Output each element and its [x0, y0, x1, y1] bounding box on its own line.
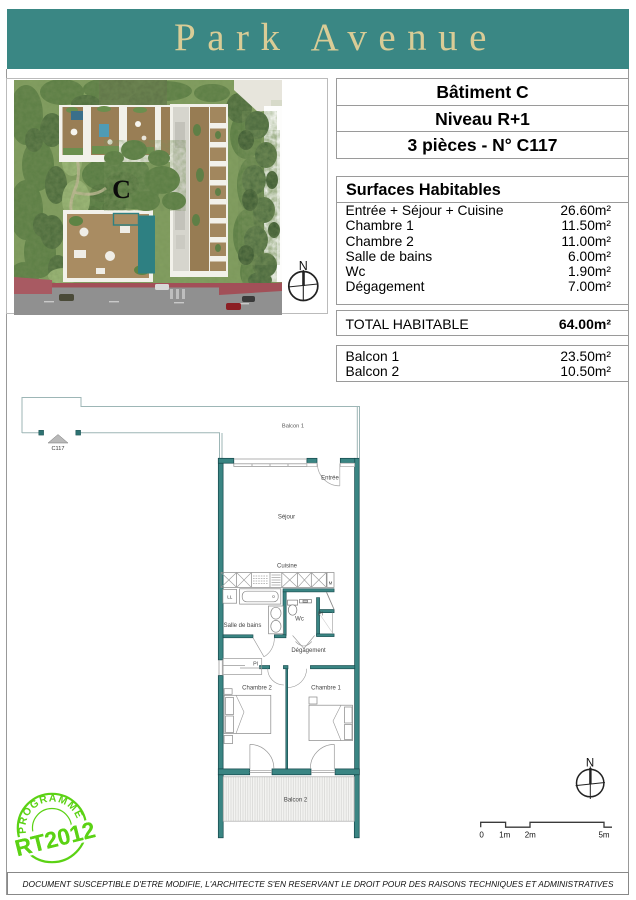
svg-text:Cuisine: Cuisine	[277, 564, 298, 570]
svg-text:Dégagement: Dégagement	[291, 648, 326, 654]
svg-text:LL: LL	[227, 595, 233, 600]
svg-text:M: M	[329, 581, 333, 586]
svg-text:Séjour: Séjour	[278, 515, 295, 521]
svg-text:2m: 2m	[525, 831, 536, 840]
svg-text:Entrée: Entrée	[321, 476, 339, 482]
svg-text:0: 0	[479, 831, 484, 840]
svg-text:1m: 1m	[499, 831, 510, 840]
svg-text:Balcon 1: Balcon 1	[282, 424, 304, 430]
svg-text:Chambre 1: Chambre 1	[311, 686, 341, 692]
svg-text:Wc: Wc	[295, 617, 304, 623]
svg-text:C: C	[112, 175, 131, 204]
svg-text:5m: 5m	[598, 831, 609, 840]
svg-text:Salle de bains: Salle de bains	[224, 623, 262, 629]
svg-text:Chambre 2: Chambre 2	[242, 686, 272, 692]
svg-text:Balcon 2: Balcon 2	[284, 798, 308, 804]
svg-text:Pl: Pl	[318, 612, 323, 618]
svg-text:Pl: Pl	[253, 662, 258, 668]
svg-text:C117: C117	[52, 446, 65, 452]
